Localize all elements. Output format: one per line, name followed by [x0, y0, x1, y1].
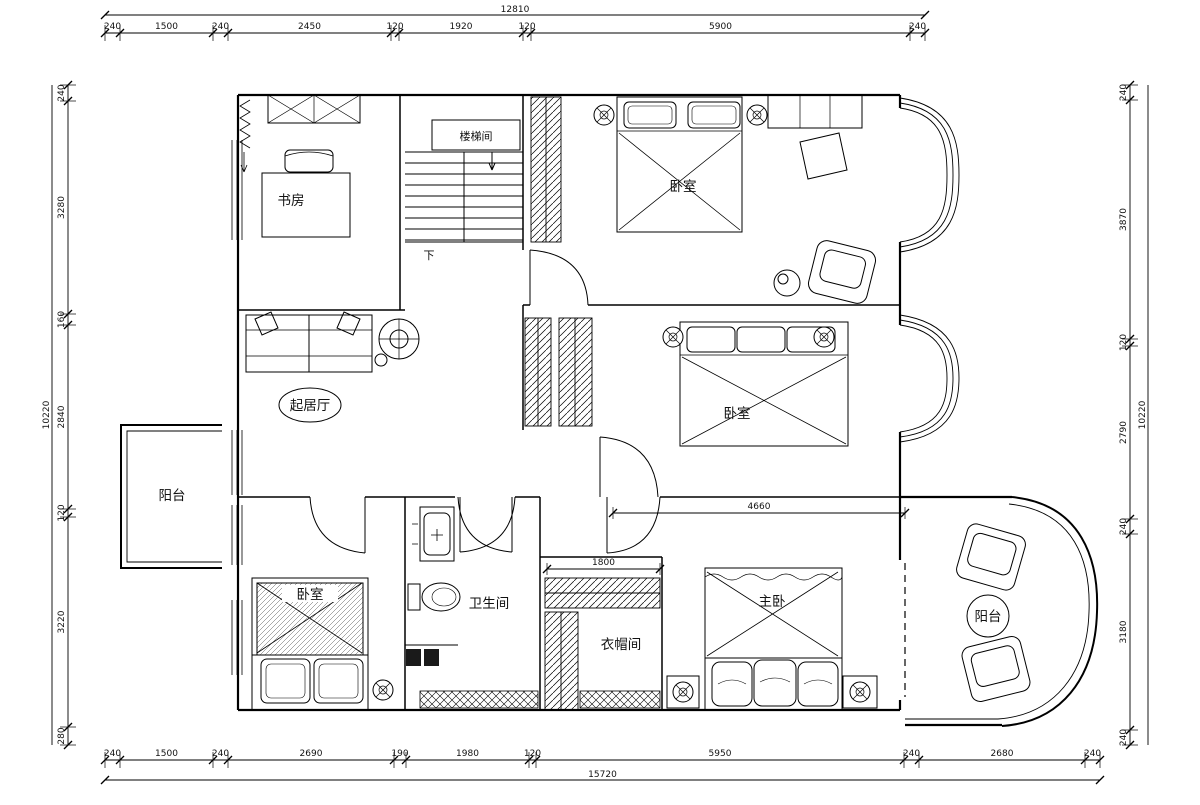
bay2-line2 — [900, 320, 953, 437]
fan-icon — [747, 105, 767, 125]
sink-faucet-cross — [412, 524, 443, 544]
dim-value: 2840 — [57, 405, 67, 428]
dim-value: 15720 — [588, 770, 617, 780]
label-balcony-left: 阳台 — [159, 488, 186, 504]
sofa-right — [309, 315, 372, 372]
window-bedroom-left-2 — [232, 600, 242, 675]
closet-strip-1 — [420, 691, 538, 708]
door-arc — [530, 250, 588, 305]
dim-value: 240 — [909, 22, 926, 32]
dim-value: 240 — [57, 84, 67, 101]
door-bathroom — [458, 497, 515, 552]
washer-unit-1 — [406, 649, 421, 666]
pillow-2-inner — [319, 664, 358, 698]
armchair — [806, 239, 877, 306]
balcony-chair-1 — [954, 522, 1027, 592]
dim-value: 2790 — [1119, 421, 1129, 444]
bed-lines — [680, 355, 848, 444]
bedroom-top-furniture — [617, 95, 878, 305]
door-bedroom-left — [310, 497, 365, 553]
fan-icon — [814, 327, 834, 347]
window-study — [232, 140, 242, 240]
label-bedroom-left: 卧室 — [297, 586, 324, 603]
floor-lamp-inner — [778, 274, 788, 284]
dim-value: 5900 — [709, 22, 732, 32]
stair-arrow — [489, 152, 495, 170]
bay-window-mid — [900, 315, 959, 442]
dim-value: 240 — [1119, 518, 1129, 535]
door-arc-2 — [458, 497, 512, 552]
dim-value: 120 — [524, 749, 541, 759]
chair-seat — [970, 644, 1021, 688]
label-bedroom-top: 卧室 — [670, 178, 697, 195]
dim-value: 120 — [386, 22, 403, 32]
balcony-chair-2 — [960, 635, 1032, 704]
label-master: 主卧 — [759, 594, 786, 610]
dim-value: 4660 — [748, 502, 771, 512]
label-down: 下 — [424, 249, 435, 262]
side-desk-dividers — [800, 95, 830, 128]
label-living: 起居厅 — [290, 398, 331, 414]
dim-value: 120 — [518, 22, 535, 32]
dimension-chains: 2401500240245012019201205900240128102401… — [42, 5, 1148, 784]
floor-plan-canvas: 书房 楼梯间 下 卧室 卧室 起居厅 阳台 卧室 卫生间 衣帽间 主卧 阳台 2… — [0, 0, 1200, 805]
pillow-2-inner — [692, 106, 736, 124]
dim-value: 240 — [104, 749, 121, 759]
wardrobe-hall — [531, 97, 561, 242]
dim-value: 1500 — [155, 749, 178, 759]
label-balcony-right: 阳台 — [975, 609, 1002, 625]
label-study: 书房 — [278, 193, 305, 209]
study-furniture — [262, 95, 360, 237]
dim-value: 2680 — [991, 749, 1014, 759]
dim-value: 3180 — [1119, 620, 1129, 643]
dim-value: 240 — [903, 749, 920, 759]
dim-value: 1800 — [592, 558, 615, 568]
study-chair-back — [285, 152, 333, 156]
dim-value: 3280 — [57, 196, 67, 219]
wall-hatch-squiggle — [240, 100, 250, 172]
fan-icon — [673, 682, 693, 702]
pillow-folds — [718, 678, 832, 684]
window-living-balcony — [232, 430, 242, 495]
dim-value: 190 — [391, 749, 408, 759]
balcony-curve-outer — [1002, 497, 1097, 726]
toilet-bowl — [422, 583, 460, 611]
label-stairwell: 楼梯间 — [460, 129, 493, 143]
door-arc — [460, 497, 515, 552]
pillow-2 — [314, 659, 363, 703]
dim-value: 280 — [57, 727, 67, 744]
floor-lamp-outer — [774, 270, 800, 296]
label-bedroom-mid: 卧室 — [724, 405, 751, 422]
bay1-line1 — [900, 108, 947, 242]
door-arc — [607, 497, 660, 553]
pillow-inner — [266, 664, 305, 698]
dim-value: 240 — [212, 749, 229, 759]
label-bathroom: 卫生间 — [469, 596, 510, 612]
window-bedroom-left-1 — [232, 505, 242, 565]
dim-value: 160 — [57, 311, 67, 328]
study-desk — [262, 173, 350, 237]
fan-icon — [663, 327, 683, 347]
chair-body — [954, 522, 1027, 592]
dim-value: 240 — [1084, 749, 1101, 759]
living-furniture — [246, 312, 419, 372]
armchair-body — [806, 239, 877, 306]
closet-strip-2 — [580, 691, 660, 708]
squiggle — [240, 100, 250, 148]
dim-value: 5950 — [709, 749, 732, 759]
chair-body — [960, 635, 1032, 704]
doors — [310, 250, 660, 553]
bed-diagonals — [707, 572, 838, 656]
dim-value: 2450 — [298, 22, 321, 32]
study-chair — [285, 150, 333, 172]
dim-value: 3870 — [1119, 208, 1129, 231]
dim-value: 240 — [1119, 84, 1129, 101]
washer-unit-2 — [424, 649, 439, 666]
door-corridor-master — [607, 497, 660, 553]
dim-value: 240 — [1119, 729, 1129, 746]
small-stool — [375, 354, 387, 366]
bed — [617, 97, 742, 232]
bathroom-fixtures — [406, 507, 460, 666]
sofa-left — [246, 315, 309, 372]
study-cabinet-x — [268, 95, 360, 123]
wardrobe-bedroom-mid — [525, 318, 592, 426]
chair-seat — [966, 532, 1018, 577]
pillow-2 — [754, 660, 796, 706]
fan-icon — [373, 680, 393, 700]
pillow — [261, 659, 310, 703]
dim-value: 240 — [212, 22, 229, 32]
label-cloakroom: 衣帽间 — [601, 637, 642, 653]
dim-value: 120 — [1119, 334, 1129, 351]
bay1-line3 — [900, 98, 959, 252]
toilet-seat — [432, 588, 456, 606]
tilted-picture — [800, 133, 847, 179]
side-desk — [768, 95, 862, 128]
fan-icon — [850, 682, 870, 702]
dim-value: 3220 — [57, 610, 67, 633]
wardrobe-body-2 — [559, 318, 592, 426]
door-bedroom-mid — [600, 437, 658, 497]
door-bedroom-top — [530, 250, 588, 305]
dim-value: 10220 — [1138, 400, 1148, 429]
pillow-inner — [628, 106, 672, 124]
pillow-2 — [737, 327, 785, 352]
dim-value: 2690 — [300, 749, 323, 759]
dim-value: 1980 — [456, 749, 479, 759]
fan-symbols — [373, 105, 870, 702]
armchair-seat — [818, 248, 866, 289]
door-arc — [600, 437, 658, 497]
door-arc — [310, 497, 365, 553]
bay2-line3 — [900, 315, 959, 442]
bay2-line1 — [900, 325, 947, 432]
dim-value: 10220 — [42, 400, 52, 429]
closet-side — [545, 612, 578, 710]
pillow — [687, 327, 735, 352]
dim-value: 1500 — [155, 22, 178, 32]
dim-value: 120 — [57, 504, 67, 521]
dim-value: 12810 — [501, 5, 530, 15]
bed-foot-wave — [705, 574, 842, 580]
bay1-line2 — [900, 103, 953, 247]
floor-plan-page: 书房 楼梯间 下 卧室 卧室 起居厅 阳台 卧室 卫生间 衣帽间 主卧 阳台 2… — [0, 0, 1200, 805]
bed — [705, 568, 842, 710]
master-furniture — [667, 568, 877, 710]
dim-value: 1920 — [450, 22, 473, 32]
dim-value: 240 — [104, 22, 121, 32]
bay-window-top — [900, 98, 959, 252]
fan-icon — [594, 105, 614, 125]
toilet-tank — [408, 584, 420, 610]
